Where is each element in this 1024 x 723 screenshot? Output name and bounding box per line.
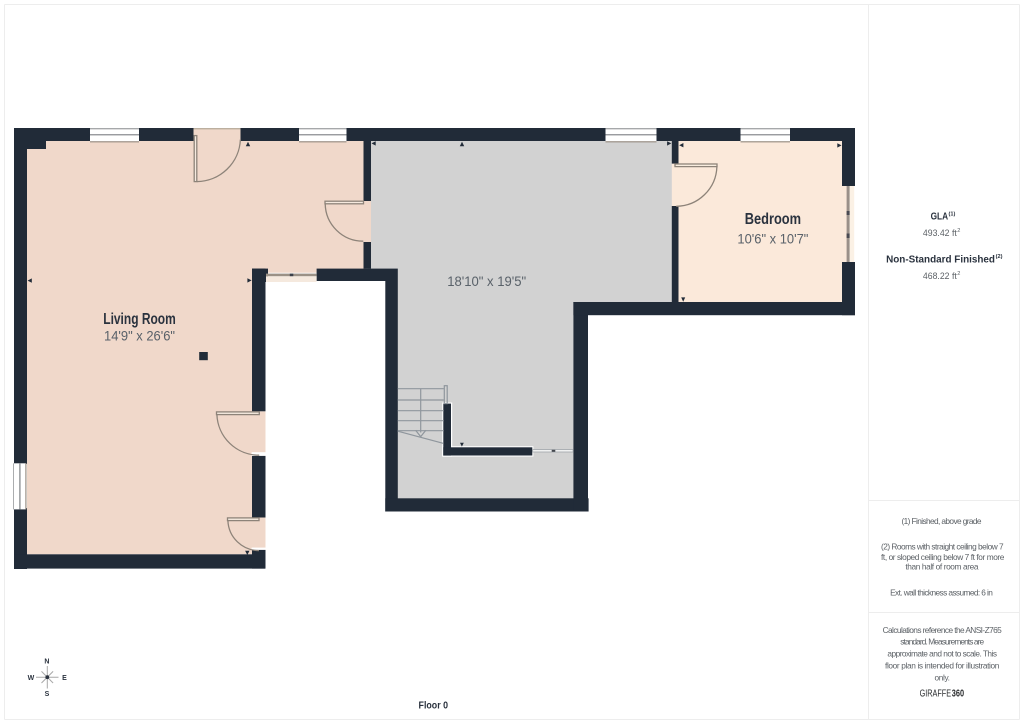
- svg-text:(2) Rooms with straight ceilin: (2) Rooms with straight ceiling below 7: [881, 541, 1004, 551]
- svg-text:Floor 0: Floor 0: [419, 700, 449, 712]
- svg-text:than half of room area: than half of room area: [905, 562, 978, 572]
- svg-text:ft, or sloped ceiling below 7: ft, or sloped ceiling below 7 ft for mor…: [881, 552, 1005, 562]
- svg-text:GIRAFFE: GIRAFFE: [920, 688, 952, 699]
- svg-text:Ext. wall thickness assumed: 6: Ext. wall thickness assumed: 6 in: [890, 587, 993, 597]
- svg-text:Calculations reference the ANS: Calculations reference the ANSI-Z765: [883, 625, 1003, 635]
- svg-text:N: N: [44, 658, 49, 665]
- svg-text:493.42 ft: 493.42 ft: [923, 227, 957, 238]
- svg-text:10'6" x 10'7": 10'6" x 10'7": [737, 230, 808, 246]
- svg-text:(1) Finished, above grade: (1) Finished, above grade: [902, 516, 982, 526]
- svg-text:2: 2: [957, 271, 960, 277]
- svg-text:floor plan is intended for ill: floor plan is intended for illustration: [885, 661, 1000, 671]
- svg-text:standard. Measurements are: standard. Measurements are: [900, 637, 984, 647]
- svg-text:approximate and not to scale.: approximate and not to scale. This: [887, 649, 997, 659]
- svg-text:360: 360: [952, 688, 964, 699]
- svg-text:Non-Standard Finished: Non-Standard Finished: [886, 254, 995, 265]
- svg-text:18'10" x 19'5": 18'10" x 19'5": [447, 273, 526, 289]
- svg-text:E: E: [62, 675, 67, 682]
- svg-text:Bedroom: Bedroom: [745, 211, 801, 228]
- svg-text:W: W: [28, 675, 35, 682]
- svg-text:2: 2: [957, 228, 960, 234]
- svg-text:Living Room: Living Room: [103, 311, 176, 328]
- svg-text:only.: only.: [934, 672, 950, 682]
- svg-text:(1): (1): [949, 211, 956, 217]
- svg-text:S: S: [45, 691, 50, 698]
- svg-text:GLA: GLA: [931, 212, 949, 223]
- svg-text:(2): (2): [996, 254, 1003, 260]
- svg-text:14'9" x 26'6": 14'9" x 26'6": [104, 328, 175, 344]
- svg-text:468.22 ft: 468.22 ft: [923, 270, 957, 281]
